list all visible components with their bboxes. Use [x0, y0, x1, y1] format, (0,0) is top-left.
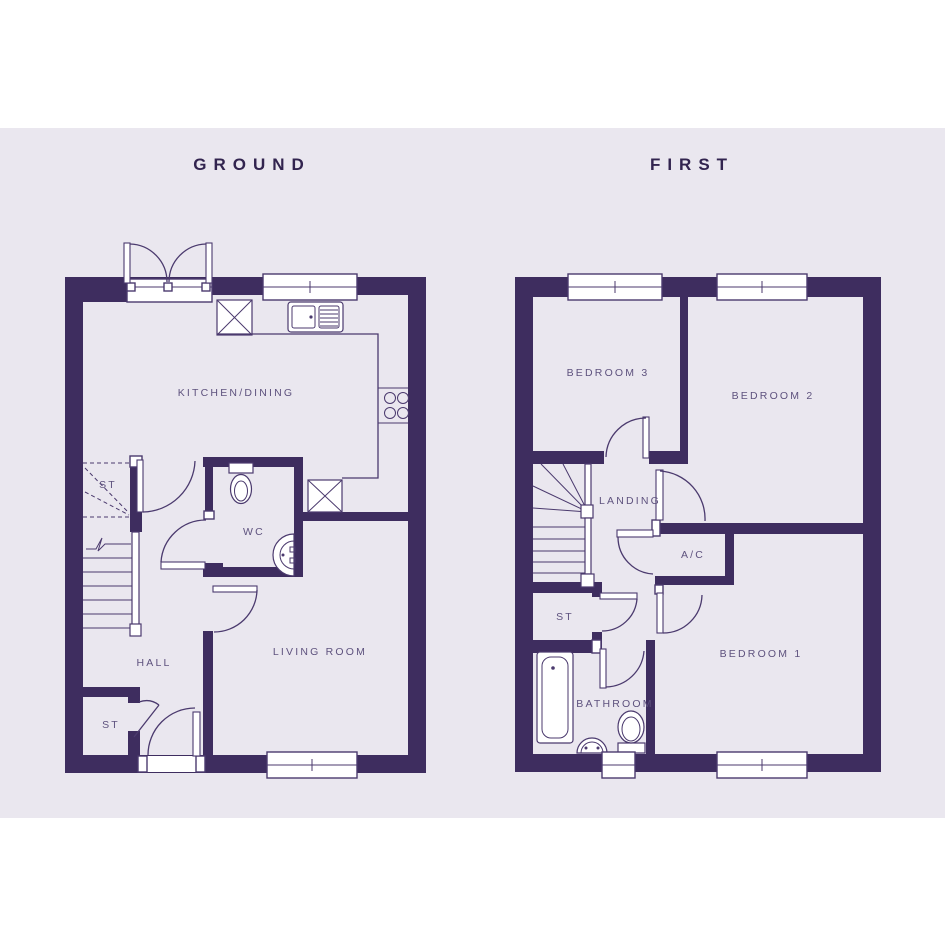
store-door-leaf — [600, 593, 637, 599]
ground-floor-title: GROUND — [193, 155, 311, 174]
french-door-left-leaf — [124, 243, 130, 283]
first-wall-left — [515, 277, 533, 772]
first-floor-title: FIRST — [650, 155, 734, 174]
wc-toilet-bowl — [231, 475, 252, 504]
bathroom-label: BATHROOM — [576, 698, 654, 710]
first-wall-right — [863, 277, 881, 772]
hall-store-wall-right-upper — [128, 687, 140, 703]
first-wall-bottom — [515, 754, 881, 772]
wc-label: WC — [243, 526, 265, 538]
kitchen-dining-label: KITCHEN/DINING — [178, 387, 295, 399]
hall-living-wall — [203, 631, 213, 755]
first-stair-newel-top — [581, 505, 593, 518]
kitchen-door-leaf — [137, 460, 143, 512]
bathroom-wall-top — [533, 640, 592, 653]
wc-wall-left — [205, 457, 213, 519]
first-stair-rail-lower — [585, 518, 591, 574]
ac-wall-right — [725, 523, 734, 585]
first-stair-newel-bottom — [581, 574, 594, 587]
wc-toilet-cistern — [229, 463, 253, 473]
bathroom-basin-tap-2 — [597, 747, 600, 750]
ac-wall-bottom — [655, 576, 733, 585]
bed3-wall-bottom-left — [533, 451, 604, 464]
hall-store-label: ST — [102, 719, 120, 731]
bathroom-door-leaf — [600, 649, 606, 688]
french-door-jamb-middle — [164, 283, 172, 291]
stair-rail — [132, 532, 139, 626]
ground-wall-bottom — [65, 755, 426, 773]
bathtub-drain-dot — [551, 666, 555, 670]
bed2-wall-bottom — [658, 523, 863, 534]
bedroom3-label: BEDROOM 3 — [567, 367, 650, 379]
sink-tap-dot — [309, 315, 312, 318]
front-door-opening — [147, 756, 196, 772]
bathroom-wall-right — [646, 640, 655, 754]
understair-store-label: ST — [99, 479, 117, 491]
ac-door-leaf — [617, 530, 653, 537]
bedroom3-door-leaf — [643, 417, 649, 458]
french-door-jamb-right — [202, 283, 210, 291]
bathroom-basin-tap-1 — [585, 747, 588, 750]
wc-basin-drain-dot — [282, 554, 285, 557]
wc-door-jamb — [204, 511, 214, 519]
ground-wall-left — [65, 277, 83, 773]
bed3-wall-bottom-right — [649, 451, 688, 464]
kitchen-living-wall — [302, 512, 408, 521]
living-door-leaf — [213, 586, 257, 592]
front-door-jamb-left — [138, 756, 147, 772]
airing-cupboard-label: A/C — [681, 549, 705, 561]
landing-label: LANDING — [599, 495, 661, 507]
bedroom1-door-leaf — [657, 593, 663, 633]
ground-wall-right — [408, 277, 426, 773]
hall-store-wall-right-lower — [128, 731, 140, 755]
store-label: ST — [556, 611, 574, 623]
wc-door-leaf — [161, 562, 205, 569]
bedroom2-label: BEDROOM 2 — [732, 390, 815, 402]
first-stair-rail-upper — [585, 464, 591, 507]
bed3-bed2-wall — [680, 277, 688, 463]
french-door-right-leaf — [206, 243, 212, 283]
bedroom1-label: BEDROOM 1 — [720, 648, 803, 660]
french-door-jamb-left — [127, 283, 135, 291]
floorplan-image: GROUND — [0, 0, 945, 945]
hall-label: HALL — [136, 657, 171, 669]
front-door-leaf — [193, 712, 200, 756]
front-door-jamb-right — [196, 756, 205, 772]
living-room-label: LIVING ROOM — [273, 646, 367, 658]
stair-newel — [130, 624, 141, 636]
